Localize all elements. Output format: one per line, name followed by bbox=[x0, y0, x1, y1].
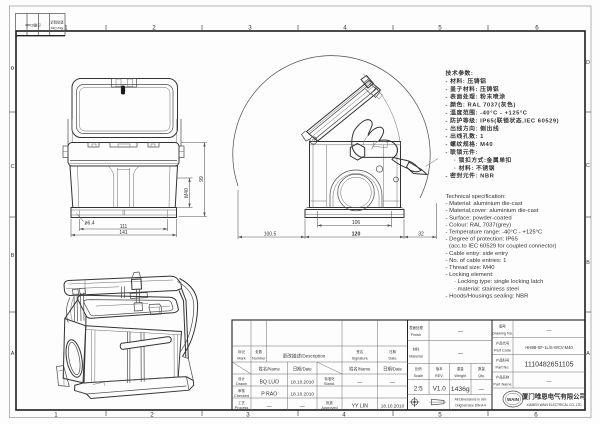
svg-text:- Locking element:: - Locking element: bbox=[446, 272, 494, 278]
svg-text:D: D bbox=[586, 60, 590, 66]
svg-text:—: — bbox=[267, 403, 272, 409]
svg-text:姓名/Name: 姓名/Name bbox=[259, 366, 281, 373]
svg-text:- Temperature range: -40°C - +: - Temperature range: -40°C - +125°C bbox=[446, 230, 544, 236]
svg-text:- 材料: 压铸铝: - 材料: 压铸铝 bbox=[446, 77, 487, 85]
svg-text:- 联锁元件:: - 联锁元件: bbox=[446, 148, 479, 156]
svg-text:—: — bbox=[547, 328, 552, 334]
svg-text:18.10.2010: 18.10.2010 bbox=[291, 379, 315, 384]
svg-text:版本: 版本 bbox=[436, 366, 443, 371]
svg-text:5: 5 bbox=[438, 25, 442, 32]
svg-text:产品代号: 产品代号 bbox=[496, 341, 510, 346]
svg-text:2: 2 bbox=[150, 412, 154, 419]
svg-text:· 锁扣方式:金属单扣: · 锁扣方式:金属单扣 bbox=[454, 156, 512, 164]
svg-text:姓名/Name: 姓名/Name bbox=[349, 366, 371, 373]
svg-text:100.5: 100.5 bbox=[264, 232, 277, 238]
svg-text:V1.0: V1.0 bbox=[433, 386, 447, 393]
svg-text:- No. of cable entries: 1: - No. of cable entries: 1 bbox=[446, 258, 507, 264]
svg-text:厦门唯恩电气有限公司: 厦门唯恩电气有限公司 bbox=[521, 392, 586, 401]
svg-text:Material: Material bbox=[409, 355, 423, 359]
svg-text:材料: 材料 bbox=[413, 347, 420, 352]
svg-text:18.10.2010: 18.10.2010 bbox=[291, 391, 315, 396]
svg-text:Mark: Mark bbox=[237, 356, 246, 360]
svg-text:标记: 标记 bbox=[238, 349, 245, 354]
svg-text:A: A bbox=[11, 351, 15, 357]
svg-text:· material: stainless steel: · material: stainless steel bbox=[454, 286, 519, 292]
svg-text:- 出线孔数: 1: - 出线孔数: 1 bbox=[446, 132, 485, 140]
svg-text:1110482651105: 1110482651105 bbox=[524, 362, 573, 369]
svg-text:Original Size DIN A 4: Original Size DIN A 4 bbox=[455, 403, 486, 407]
svg-text:120: 120 bbox=[352, 232, 361, 238]
svg-text:日期: 日期 bbox=[389, 349, 396, 354]
svg-text:All Dimensions in mm: All Dimensions in mm bbox=[455, 397, 487, 401]
svg-text:标准化: 标准化 bbox=[324, 376, 335, 381]
svg-text:—: — bbox=[300, 403, 305, 409]
svg-text:数量: 数量 bbox=[478, 366, 485, 371]
svg-text:D: D bbox=[11, 66, 15, 72]
svg-text:YY LIN: YY LIN bbox=[352, 403, 369, 409]
svg-text:HH9B-SF-1L/S-WCV-M40: HH9B-SF-1L/S-WCV-M40 bbox=[525, 345, 573, 350]
svg-text:4: 4 bbox=[342, 412, 346, 419]
svg-text:图号: 图号 bbox=[499, 324, 506, 329]
svg-text:ø6.4: ø6.4 bbox=[85, 221, 95, 227]
svg-text:Weight: Weight bbox=[454, 374, 467, 378]
svg-text:- Material: aluminium die-cast: - Material: aluminium die-cast bbox=[446, 201, 523, 207]
svg-text:Part Code: Part Code bbox=[494, 349, 511, 353]
svg-text:批准: 批准 bbox=[326, 400, 333, 405]
svg-text:- Cable entry: side entry: - Cable entry: side entry bbox=[446, 251, 509, 257]
svg-text:Number: Number bbox=[252, 356, 266, 360]
svg-text:- Colour: RAL 7037(grey): - Colour: RAL 7037(grey) bbox=[446, 222, 512, 228]
svg-text:- Material,cover: aluminium di: - Material,cover: aluminium die-cast bbox=[446, 208, 539, 214]
svg-text:Drawing No.: Drawing No. bbox=[492, 332, 513, 336]
svg-text:Qty.: Qty. bbox=[478, 374, 485, 378]
svg-text:- 防护等级: IP65(联锁状态,IEC 60529): - 防护等级: IP65(联锁状态,IEC 60529) bbox=[446, 116, 560, 124]
svg-text:2: 2 bbox=[152, 25, 156, 32]
svg-text:比例: 比例 bbox=[415, 366, 422, 371]
svg-text:M40: M40 bbox=[184, 188, 190, 198]
svg-text:P RAO: P RAO bbox=[261, 391, 277, 397]
svg-text:产品名称: 产品名称 bbox=[496, 375, 510, 380]
svg-text:3: 3 bbox=[246, 412, 250, 419]
svg-text:—: — bbox=[357, 379, 362, 385]
svg-text:Signature: Signature bbox=[352, 356, 368, 360]
svg-text:- 表面处理: 粉末喷涂: - 表面处理: 粉末喷涂 bbox=[446, 93, 506, 101]
svg-text:4: 4 bbox=[343, 25, 347, 32]
svg-text:6: 6 bbox=[534, 412, 538, 419]
svg-text:· 材料: 不锈钢: · 材料: 不锈钢 bbox=[454, 164, 495, 172]
svg-text:更改描述: 更改描述 bbox=[50, 20, 64, 25]
svg-text:产品料号: 产品料号 bbox=[496, 358, 510, 363]
svg-text:- 盖子材料: 压铸铝: - 盖子材料: 压铸铝 bbox=[446, 85, 500, 93]
svg-text:签名: 签名 bbox=[356, 349, 363, 354]
svg-text:更改描述/Description: 更改描述/Description bbox=[283, 353, 326, 360]
svg-text:99: 99 bbox=[199, 176, 205, 182]
svg-text:XIAMEN WAIN ELECTRICAL CO.,LTD: XIAMEN WAIN ELECTRICAL CO.,LTD bbox=[527, 403, 583, 407]
svg-text:Technical specification:: Technical specification: bbox=[446, 194, 507, 200]
svg-text:审核: 审核 bbox=[238, 388, 245, 393]
svg-text:C: C bbox=[586, 163, 590, 169]
svg-text:- 颜色: RAL 7037(灰色): - 颜色: RAL 7037(灰色) bbox=[446, 101, 516, 109]
svg-text:技术参数:: 技术参数: bbox=[446, 69, 474, 77]
svg-text:- 螺纹规格: M40: - 螺纹规格: M40 bbox=[446, 140, 494, 148]
svg-text:- Degree of protection: IP65: - Degree of protection: IP65 bbox=[446, 237, 519, 243]
svg-text:6: 6 bbox=[535, 25, 539, 32]
svg-text:—: — bbox=[547, 379, 552, 385]
svg-text:- Hoods/Housings sealing: NBR: - Hoods/Housings sealing: NBR bbox=[446, 293, 529, 299]
svg-text:Approved: Approved bbox=[321, 406, 337, 410]
svg-text:—: — bbox=[458, 351, 463, 357]
svg-text:Checked: Checked bbox=[234, 394, 249, 398]
svg-text:REV.: REV. bbox=[435, 374, 444, 378]
svg-text:1436g: 1436g bbox=[451, 386, 470, 393]
svg-text:设计: 设计 bbox=[238, 376, 245, 381]
svg-text:Drawn: Drawn bbox=[236, 382, 247, 386]
svg-text:Part No.: Part No. bbox=[496, 366, 510, 370]
svg-text:Rev Des: Rev Des bbox=[50, 26, 63, 30]
svg-text:- 密封元件: NBR: - 密封元件: NBR bbox=[446, 172, 495, 180]
svg-text:- 出线方向: 侧出线: - 出线方向: 侧出线 bbox=[446, 124, 500, 132]
svg-text:—: — bbox=[479, 387, 485, 393]
svg-text:Part Name: Part Name bbox=[493, 383, 511, 387]
svg-text:Stand.: Stand. bbox=[324, 382, 335, 386]
svg-text:5: 5 bbox=[438, 412, 442, 419]
svg-text:重量: 重量 bbox=[457, 366, 464, 371]
svg-text:A: A bbox=[586, 351, 590, 357]
svg-text:—: — bbox=[390, 379, 395, 385]
svg-text:C: C bbox=[11, 164, 15, 170]
svg-text:—: — bbox=[458, 329, 463, 335]
svg-text:B: B bbox=[586, 260, 590, 266]
svg-text:表面处理: 表面处理 bbox=[409, 325, 423, 330]
svg-text:工艺: 工艺 bbox=[238, 400, 245, 405]
svg-text:141: 141 bbox=[119, 230, 128, 236]
svg-text:106: 106 bbox=[352, 220, 361, 226]
svg-text:处数: 处数 bbox=[255, 349, 262, 354]
svg-text:WAIN: WAIN bbox=[507, 397, 520, 402]
svg-text:32: 32 bbox=[418, 232, 424, 238]
svg-text:1: 1 bbox=[54, 412, 58, 419]
svg-text:3: 3 bbox=[248, 25, 252, 32]
svg-text:日期/Date: 日期/Date bbox=[25, 23, 41, 28]
svg-text:· Locking type: single locking: · Locking type: single locking latch bbox=[454, 279, 543, 285]
svg-text:- 温度范围: -40°C - +125°C: - 温度范围: -40°C - +125°C bbox=[446, 109, 528, 117]
svg-text:2:5: 2:5 bbox=[414, 386, 423, 393]
svg-text:Finish: Finish bbox=[411, 333, 421, 337]
svg-text:(acc.to IEC 60529 for coupled: (acc.to IEC 60529 for coupled connector) bbox=[449, 244, 556, 250]
svg-text:Scale: Scale bbox=[414, 374, 424, 378]
svg-text:Date: Date bbox=[388, 356, 396, 360]
svg-text:B: B bbox=[11, 253, 15, 259]
svg-text:- Surface: powder-coated: - Surface: powder-coated bbox=[446, 215, 512, 221]
svg-text:Process: Process bbox=[235, 406, 249, 410]
svg-text:BQ LUO: BQ LUO bbox=[259, 379, 279, 385]
svg-text:18.10.2010: 18.10.2010 bbox=[381, 403, 405, 408]
svg-text:- Thread size: M40: - Thread size: M40 bbox=[446, 265, 496, 271]
